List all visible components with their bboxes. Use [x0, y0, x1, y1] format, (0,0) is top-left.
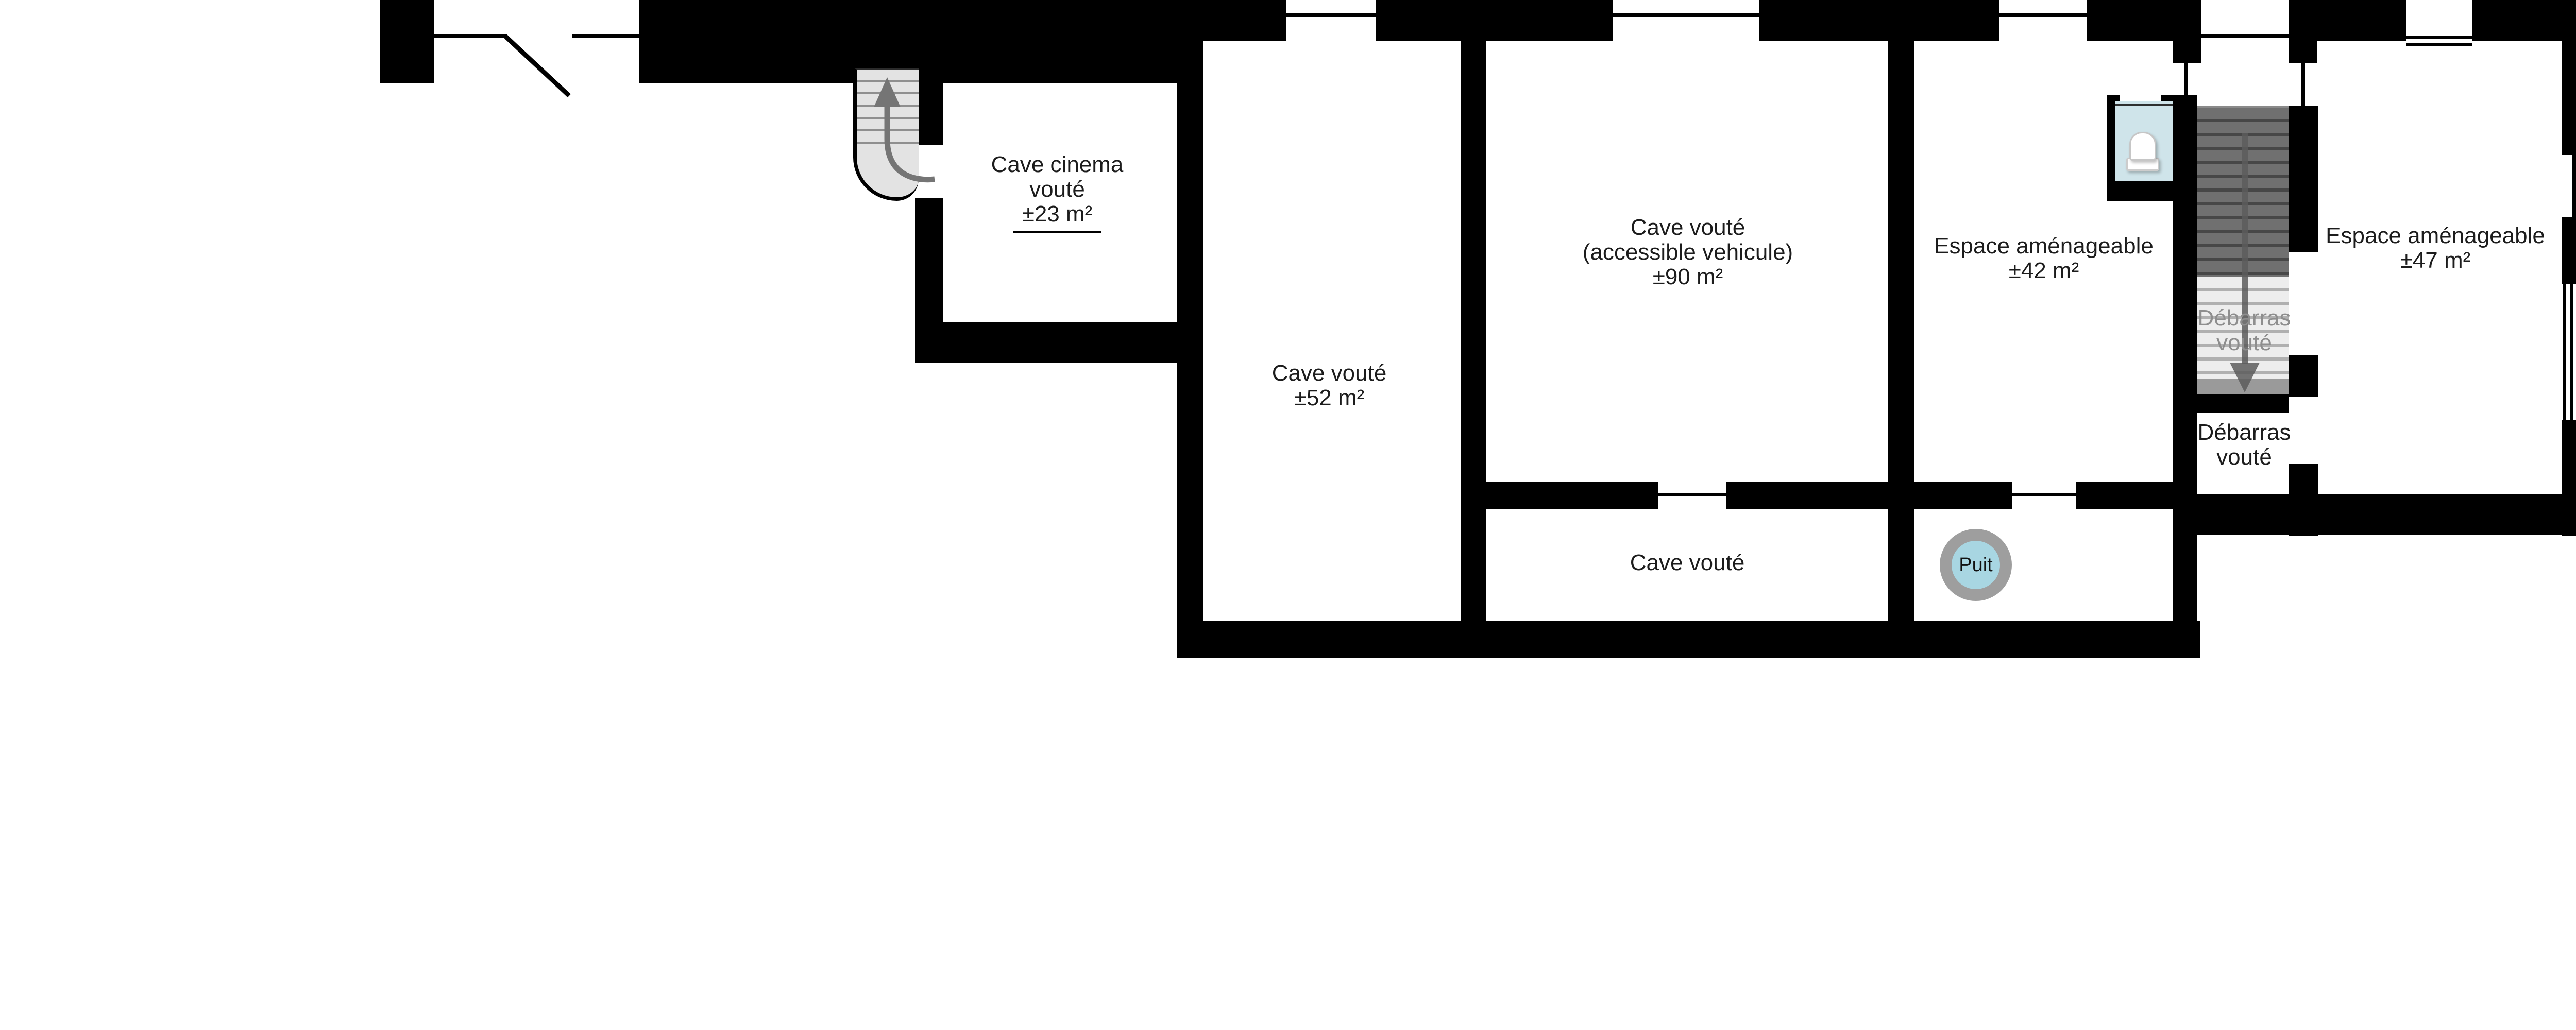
wall — [2107, 181, 2173, 201]
wall — [1484, 482, 1658, 509]
wall — [2173, 494, 2576, 535]
room-name: Espace aménageable — [1934, 234, 2154, 259]
room-area: ±23 m² — [991, 202, 1124, 227]
well-icon: Puit — [1940, 529, 2012, 601]
stair-end-wall — [2197, 394, 2289, 413]
room-area: ±42 m² — [1934, 259, 2154, 283]
wall — [1914, 482, 2012, 509]
window-icon — [2406, 43, 2472, 46]
wall — [2087, 0, 2201, 41]
wall — [1177, 621, 2200, 658]
room-name: vouté — [2198, 331, 2291, 355]
stairwell-outline — [2301, 63, 2305, 106]
room-label-debarras: Débarras vouté — [2198, 420, 2291, 470]
wall — [1376, 0, 1613, 41]
wall — [1888, 41, 1914, 621]
area-underline — [1013, 231, 1101, 233]
room-area: ±90 m² — [1583, 265, 1793, 289]
well-label: Puit — [1959, 554, 1992, 576]
room-name: vouté — [991, 177, 1124, 202]
room-name: Cave vouté — [1583, 215, 1793, 240]
room-name: Débarras — [2198, 306, 2291, 331]
floor-plan: Puit Cave cinema vouté ±23 m² Cave vouté… — [0, 0, 2576, 1030]
wall — [1461, 41, 1486, 621]
wall — [1177, 41, 1203, 621]
wall — [2289, 41, 2317, 63]
room-label-cave-bottom: Cave vouté — [1630, 551, 1745, 575]
wall-outline — [2572, 154, 2576, 217]
wall — [2562, 41, 2576, 154]
wall — [1759, 0, 1999, 41]
window-icon — [1286, 13, 1376, 17]
wall — [2289, 106, 2318, 252]
wall — [2289, 355, 2318, 397]
wall — [2076, 482, 2174, 509]
wall — [915, 198, 943, 322]
wall — [1726, 482, 1906, 509]
window-icon — [1999, 13, 2087, 17]
wall — [1177, 0, 1286, 41]
door-frame-line — [572, 34, 639, 38]
room-label-espace-47: Espace aménageable ±47 m² — [2326, 224, 2545, 273]
room-label-cave-52: Cave vouté ±52 m² — [1272, 361, 1387, 410]
room-area: ±52 m² — [1272, 386, 1387, 410]
room-label-debarras-stairs: Débarras vouté — [2198, 306, 2291, 355]
room-label-cave-cinema: Cave cinema vouté ±23 m² — [991, 152, 1124, 227]
wall — [2562, 217, 2576, 284]
window-icon — [2406, 36, 2472, 39]
wall — [2173, 41, 2201, 63]
wall — [2173, 95, 2197, 621]
stairs-up-icon — [853, 68, 919, 201]
room-name: Débarras — [2198, 420, 2291, 445]
stair-tread-strip — [2197, 379, 2289, 394]
wall — [2289, 0, 2406, 41]
door-opening-line — [2012, 493, 2076, 496]
room-name: Cave vouté — [1272, 361, 1387, 386]
toilet-icon — [2129, 132, 2156, 161]
wall — [915, 322, 1203, 363]
room-name: Cave vouté — [1630, 551, 1745, 575]
room-label-espace-42: Espace aménageable ±42 m² — [1934, 234, 2154, 283]
room-label-cave-90: Cave vouté (accessible vehicule) ±90 m² — [1583, 215, 1793, 289]
door-swing-icon — [504, 35, 571, 97]
stairs-down-icon — [2197, 108, 2289, 277]
door-frame-line — [434, 34, 507, 38]
window-icon — [2563, 284, 2566, 420]
wall — [915, 83, 943, 145]
room-note: (accessible vehicule) — [1583, 240, 1793, 265]
room-name: vouté — [2198, 445, 2291, 470]
window-icon — [1613, 13, 1759, 17]
room-name: Cave cinema — [991, 152, 1124, 177]
door-opening-line — [1658, 493, 1726, 496]
window-icon — [2570, 284, 2573, 420]
stair-treads — [857, 70, 919, 148]
room-area: ±47 m² — [2326, 248, 2545, 273]
stair-landing-line — [2201, 34, 2289, 38]
toilet-room-line — [2115, 104, 2173, 106]
wall — [2107, 95, 2115, 181]
wall — [2472, 0, 2576, 41]
wall — [380, 0, 434, 83]
room-name: Espace aménageable — [2326, 224, 2545, 248]
